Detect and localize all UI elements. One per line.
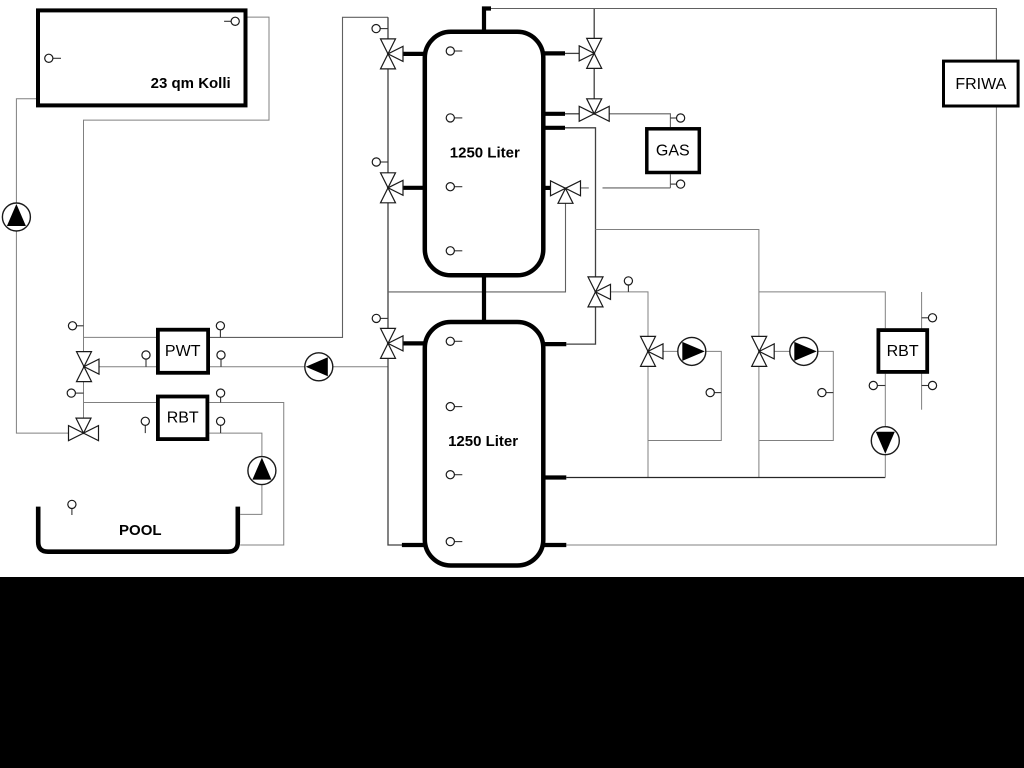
svg-text:1250 Liter: 1250 Liter (450, 144, 520, 161)
svg-text:POOL: POOL (119, 522, 162, 539)
svg-text:RBT: RBT (887, 343, 919, 360)
svg-text:GAS: GAS (656, 143, 690, 160)
svg-text:FRIWA: FRIWA (955, 76, 1006, 93)
svg-text:23 qm Kolli: 23 qm Kolli (151, 75, 231, 92)
svg-text:1250 Liter: 1250 Liter (448, 433, 518, 450)
svg-text:PWT: PWT (165, 343, 201, 360)
svg-text:RBT: RBT (167, 410, 199, 427)
